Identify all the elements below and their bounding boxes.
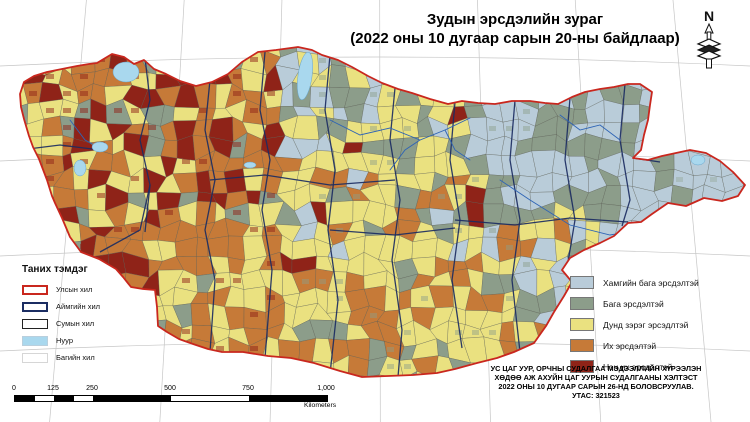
legend-borders-header: Таних тэмдэг (22, 264, 100, 275)
legend-item: Нуур (22, 332, 100, 349)
legend-item: Багийн хил (22, 349, 100, 366)
legend-item: Улсын хил (22, 281, 100, 298)
scale-bar-segment (54, 396, 74, 401)
map-title-line1: Зудын эрсдэлийн зураг (320, 10, 710, 29)
scale-tick-label: 250 (86, 385, 98, 392)
legend-item: Дунд зэрэг эрсэдлтэй (570, 314, 699, 335)
north-label: N (704, 8, 714, 24)
attribution-line: 2022 ОНЫ 10 ДУГААР САРЫН 26-НД БОЛОВСРУУ… (440, 382, 750, 391)
legend-item-label: Бага эрсдэлтэй (603, 299, 664, 309)
legend-item-label: Сумын хил (56, 319, 94, 328)
map-title: Зудын эрсдэлийн зураг (2022 оны 10 дугаа… (320, 10, 710, 48)
legend-swatch (570, 339, 594, 352)
scale-bar-segment (249, 396, 327, 401)
legend-item-label: Аймгийн хил (56, 302, 100, 311)
attribution-line: УТАС: 321523 (440, 391, 750, 400)
scale-bar-unit: Kilometers (304, 402, 336, 409)
legend-swatch (570, 297, 594, 310)
legend-swatch (22, 319, 48, 329)
legend-item: Аймгийн хил (22, 298, 100, 315)
scale-bar-segment (35, 396, 55, 401)
legend-borders: Таних тэмдэг Улсын хилАймгийн хилСумын х… (22, 264, 100, 366)
legend-item-label: Нуур (56, 336, 73, 345)
scale-bar-segments (14, 395, 328, 402)
attribution-line: ХӨДӨӨ АЖ АХУЙН ЦАГ УУРЫН СУДАЛГААНЫ ХЭЛТ… (440, 373, 750, 382)
legend-swatch (570, 276, 594, 289)
scale-bar-segment (171, 396, 249, 401)
scale-tick-label: 125 (47, 385, 59, 392)
map-page: Зудын эрсдэлийн зураг (2022 оны 10 дугаа… (0, 0, 750, 422)
legend-swatch (22, 285, 48, 295)
legend-swatch (22, 336, 48, 346)
scale-bar-segment (74, 396, 94, 401)
scale-tick-label: 500 (164, 385, 176, 392)
legend-item-label: Их эрсдэлтэй (603, 341, 656, 351)
legend-risk-items: Хамгийн бага эрсдэлтэйБага эрсдэлтэйДунд… (570, 272, 699, 377)
attribution-line: УС ЦАГ УУР, ОРЧНЫ СУДАЛГАА МЭДЭЭЛЛИЙН ХҮ… (440, 364, 750, 373)
legend-item: Сумын хил (22, 315, 100, 332)
legend-item: Их эрсдэлтэй (570, 335, 699, 356)
scale-bar-segment (15, 396, 35, 401)
scale-tick-label: 0 (12, 385, 16, 392)
map-title-line2: (2022 оны 10 дугаар сарын 20-ны байдлаар… (320, 29, 710, 48)
legend-item: Хамгийн бага эрсдэлтэй (570, 272, 699, 293)
legend-item-label: Улсын хил (56, 285, 92, 294)
legend-item-label: Хамгийн бага эрсдэлтэй (603, 278, 699, 288)
legend-swatch (22, 353, 48, 363)
legend-swatch (22, 302, 48, 312)
north-arrow-icon: N (692, 6, 726, 72)
legend-item-label: Дунд зэрэг эрсэдлтэй (603, 320, 688, 330)
legend-item: Бага эрсдэлтэй (570, 293, 699, 314)
legend-risk: Хамгийн бага эрсдэлтэйБага эрсдэлтэйДунд… (570, 272, 699, 377)
legend-borders-items: Улсын хилАймгийн хилСумын хилНуурБагийн … (22, 281, 100, 366)
scale-bar-segment (93, 396, 171, 401)
scale-tick-label: 750 (242, 385, 254, 392)
attribution: УС ЦАГ УУР, ОРЧНЫ СУДАЛГАА МЭДЭЭЛЛИЙН ХҮ… (440, 364, 750, 400)
scale-bar: 01252505007501,000 Kilometers (14, 385, 354, 411)
scale-tick-label: 1,000 (317, 385, 335, 392)
legend-swatch (570, 318, 594, 331)
legend-item-label: Багийн хил (56, 353, 95, 362)
